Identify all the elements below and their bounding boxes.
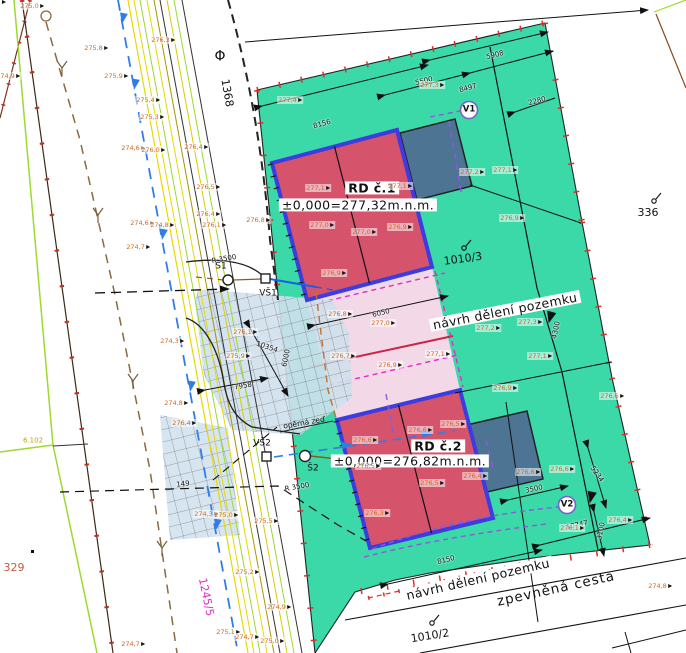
shaft-vs1-label: VŠ1 bbox=[259, 289, 277, 298]
spot-elevation: 274,7 bbox=[120, 640, 146, 648]
parcel-marker-icon bbox=[430, 615, 439, 625]
spot-flag-icon bbox=[398, 363, 402, 367]
spot-elevation: 276,1 bbox=[232, 328, 258, 336]
spot-flag-icon bbox=[234, 513, 238, 517]
point-v1-label: V1 bbox=[463, 106, 476, 115]
spot-flag-icon bbox=[326, 186, 330, 190]
site-plan: RD č.1 ±0,000=277,32m.n.m. RD č.2 ±0,000… bbox=[0, 0, 686, 653]
spot-elevation: 276,4 bbox=[462, 472, 488, 480]
spot-flag-icon bbox=[536, 470, 540, 474]
spot-flag-icon bbox=[440, 83, 444, 87]
spot-flag-icon bbox=[171, 38, 175, 42]
spot-flag-icon bbox=[373, 438, 377, 442]
site-plan-drawing bbox=[0, 0, 686, 653]
spot-elevation: 275,9 bbox=[225, 352, 251, 360]
spot-flag-icon bbox=[372, 230, 376, 234]
junction-6102: 6.102 bbox=[23, 437, 43, 444]
shaft-vs2-label: VŠ2 bbox=[253, 439, 271, 448]
spot-flag-icon bbox=[496, 326, 500, 330]
parcel-marker-icon bbox=[652, 193, 661, 203]
spot-elevation bbox=[0, 0, 7, 4]
spot-elevation: 275,4 bbox=[135, 96, 161, 104]
spot-flag-icon bbox=[342, 271, 346, 275]
spot-elevation: 276,5 bbox=[195, 183, 221, 191]
spot-elevation: 274,8 bbox=[149, 221, 175, 229]
spot-flag-icon bbox=[668, 584, 672, 588]
spot-flag-icon bbox=[274, 519, 278, 523]
spot-elevation: 276,6 bbox=[352, 436, 378, 444]
spot-flag-icon bbox=[192, 421, 196, 425]
spot-elevation: 275,9 bbox=[103, 72, 129, 80]
spot-flag-icon bbox=[222, 223, 226, 227]
spot-flag-icon bbox=[255, 570, 259, 574]
spot-elevation: 276,4 bbox=[195, 210, 221, 218]
spot-elevation: 274,9 bbox=[0, 72, 21, 80]
spot-elevation: 276,4 bbox=[607, 516, 633, 524]
spot-elevation: 276,3 bbox=[150, 36, 176, 44]
spot-elevation: 276,9 bbox=[377, 361, 403, 369]
manhole-s1-icon bbox=[223, 275, 233, 285]
survey-dot-icon bbox=[31, 550, 34, 553]
spot-elevation: 277,0 bbox=[370, 319, 396, 327]
spot-elevation: 276,6 bbox=[599, 392, 625, 400]
spot-flag-icon bbox=[156, 98, 160, 102]
spot-flag-icon bbox=[570, 467, 574, 471]
spot-elevation: 276,5 bbox=[419, 479, 445, 487]
spot-flag-icon bbox=[391, 321, 395, 325]
spot-elevation: 276,8 bbox=[245, 216, 271, 224]
parcel-329: 329 bbox=[4, 562, 25, 574]
spot-elevation: 276,4 bbox=[183, 143, 209, 151]
spot-elevation: 276,1 bbox=[559, 524, 585, 532]
manhole-s2-icon bbox=[300, 451, 311, 462]
spot-elevation: 277,0 bbox=[351, 228, 377, 236]
spot-elevation: 277,3 bbox=[517, 318, 543, 326]
spot-flag-icon bbox=[520, 216, 524, 220]
spot-flag-icon bbox=[246, 354, 250, 358]
spot-elevation: 275,8 bbox=[83, 44, 109, 52]
spot-elevation: 274,8 bbox=[163, 399, 189, 407]
spot-elevation: 276,8 bbox=[327, 310, 353, 318]
spot-flag-icon bbox=[280, 639, 284, 643]
spot-elevation: 276,6 bbox=[515, 468, 541, 476]
spot-flag-icon bbox=[216, 185, 220, 189]
spot-flag-icon bbox=[446, 352, 450, 356]
spot-flag-icon bbox=[330, 223, 334, 227]
spot-flag-icon bbox=[513, 168, 517, 172]
spot-flag-icon bbox=[161, 148, 165, 152]
rd1-elevation: ±0,000=277,32m.n.m. bbox=[279, 198, 437, 211]
spot-elevation: 275,0 bbox=[213, 511, 239, 519]
spot-flag-icon bbox=[408, 184, 412, 188]
spot-elevation: 277,1 bbox=[387, 182, 413, 190]
spot-flag-icon bbox=[440, 481, 444, 485]
pole-fork-icon bbox=[57, 61, 167, 556]
spot-flag-icon bbox=[580, 526, 584, 530]
spot-elevation: 275,0 bbox=[19, 2, 45, 10]
spot-flag-icon bbox=[461, 422, 465, 426]
spot-flag-icon bbox=[170, 223, 174, 227]
spot-flag-icon bbox=[620, 394, 624, 398]
spot-elevation: 276,5 bbox=[440, 420, 466, 428]
spot-elevation: 276,9 bbox=[492, 384, 518, 392]
spot-elevation: 276,6 bbox=[407, 426, 433, 434]
spot-elevation: 274,7 bbox=[125, 243, 151, 251]
spot-elevation: 276,9 bbox=[387, 223, 413, 231]
spot-flag-icon bbox=[548, 354, 552, 358]
spot-flag-icon bbox=[408, 225, 412, 229]
spot-flag-icon bbox=[376, 464, 380, 468]
spot-flag-icon bbox=[184, 401, 188, 405]
spot-flag-icon bbox=[480, 170, 484, 174]
spot-elevation: 277,4 bbox=[277, 96, 303, 104]
spot-elevation: 276,5 bbox=[355, 462, 381, 470]
spot-elevation: 276,9 bbox=[321, 269, 347, 277]
spot-flag-icon bbox=[160, 115, 164, 119]
spot-flag-icon bbox=[348, 312, 352, 316]
point-v2-label: V2 bbox=[561, 501, 574, 510]
shaft-vs1-icon bbox=[261, 274, 270, 283]
spot-elevation: 274,7 bbox=[234, 633, 260, 641]
spot-elevation: 277,1 bbox=[425, 350, 451, 358]
spot-elevation: 275,0 bbox=[259, 637, 285, 645]
spot-elevation: 275,3 bbox=[139, 113, 165, 121]
spot-flag-icon bbox=[628, 518, 632, 522]
spot-flag-icon bbox=[216, 212, 220, 216]
spot-flag-icon bbox=[513, 386, 517, 390]
spot-flag-icon bbox=[287, 605, 291, 609]
spot-elevation: 277,2 bbox=[475, 324, 501, 332]
spot-flag-icon bbox=[428, 428, 432, 432]
spot-flag-icon bbox=[124, 74, 128, 78]
spot-flag-icon bbox=[483, 474, 487, 478]
spot-flag-icon bbox=[16, 74, 20, 78]
pole-icon bbox=[41, 11, 51, 21]
parcel-336: 336 bbox=[638, 207, 659, 219]
spot-elevation: 276,7 bbox=[330, 352, 356, 360]
spot-elevation: 277,2 bbox=[459, 168, 485, 176]
spot-elevation: 276,6 bbox=[549, 465, 575, 473]
spot-elevation: 275,5 bbox=[253, 517, 279, 525]
spot-elevation: 277,1 bbox=[305, 184, 331, 192]
spot-elevation: 274,8 bbox=[647, 582, 673, 590]
spot-flag-icon bbox=[104, 46, 108, 50]
spot-flag-icon bbox=[385, 511, 389, 515]
spot-elevation: 274,9 bbox=[266, 603, 292, 611]
rd2-title: RD č.2 bbox=[411, 439, 465, 452]
spot-elevation: 276,9 bbox=[499, 214, 525, 222]
spot-flag-icon bbox=[141, 642, 145, 646]
manhole-s2-label: Š2 bbox=[307, 464, 318, 473]
spot-elevation: 275,2 bbox=[234, 568, 260, 576]
spot-flag-icon bbox=[538, 320, 542, 324]
spot-flag-icon bbox=[40, 4, 44, 8]
spot-elevation: 277,1 bbox=[492, 166, 518, 174]
spot-flag-icon bbox=[266, 218, 270, 222]
spot-elevation: 276,4 bbox=[171, 419, 197, 427]
spot-elevation: 277,0 bbox=[309, 221, 335, 229]
spot-elevation: 277,3 bbox=[419, 81, 445, 89]
spot-elevation: 276,1 bbox=[201, 221, 227, 229]
dimension-label: 149 bbox=[176, 479, 190, 489]
spot-flag-icon bbox=[298, 98, 302, 102]
spot-flag-icon bbox=[180, 339, 184, 343]
spot-flag-icon bbox=[2, 0, 6, 4]
spot-elevation: 276,0 bbox=[140, 146, 166, 154]
spot-elevation: 277,1 bbox=[527, 352, 553, 360]
spot-flag-icon bbox=[204, 145, 208, 149]
phi-symbol: Φ bbox=[214, 50, 225, 65]
spot-elevation: 274,3 bbox=[159, 337, 185, 345]
spot-flag-icon bbox=[253, 330, 257, 334]
spot-flag-icon bbox=[351, 354, 355, 358]
spot-flag-icon bbox=[146, 245, 150, 249]
shaft-vs2-icon bbox=[262, 452, 271, 461]
spot-elevation: 276,3 bbox=[364, 509, 390, 517]
